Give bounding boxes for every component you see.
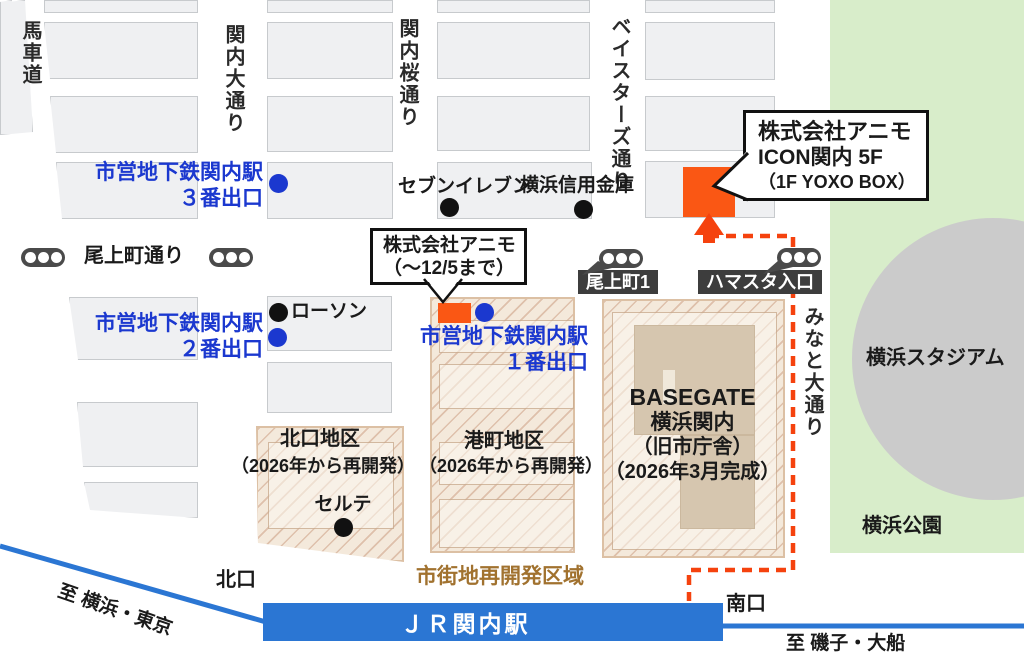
yokohama-stadium-label: 横浜スタジアム [866, 347, 1005, 370]
direction-to-yokohama: 至 横浜・東京 [55, 581, 175, 640]
north-district-name: 北口地区 [250, 428, 390, 451]
building [437, 22, 590, 79]
minatocho-district-note: （2026年から再開発） [419, 456, 603, 477]
lawson-label: ローソン [291, 301, 367, 323]
street-kannai-odori: 関内大通り [219, 24, 248, 134]
building [645, 22, 775, 80]
basegate-line4: （2026年3月完成） [602, 460, 783, 485]
traffic-light-icon [599, 249, 643, 268]
yokohama-park-label: 横浜公園 [862, 515, 942, 538]
exit1-text: １番出口 [388, 350, 588, 376]
building [84, 482, 198, 518]
traffic-light-icon [21, 248, 65, 267]
subway-name: 市営地下鉄関内駅 [388, 324, 588, 350]
minatocho-district-name: 港町地区 [464, 430, 544, 453]
traffic-light-icon [777, 248, 821, 267]
building [77, 402, 198, 467]
building [267, 362, 392, 413]
basegate-label: BASEGATE 横浜関内 （旧市庁舎） （2026年3月完成） [602, 384, 783, 485]
building [267, 96, 393, 152]
old-office-name: 株式会社アニモ [383, 234, 516, 257]
exit2-text: ２番出口 [63, 337, 263, 363]
building [437, 0, 590, 13]
subway-exit2-label: 市営地下鉄関内駅 ２番出口 [63, 311, 263, 363]
subway-exit1-label: 市営地下鉄関内駅 １番出口 [388, 324, 588, 376]
street-onoe-dori: 尾上町通り [84, 245, 184, 268]
south-exit-label: 南口 [726, 593, 766, 616]
sign-hamasuta: ハマスタ入口 [698, 270, 822, 294]
street-bashamichi: 馬車道 [16, 20, 45, 86]
subway-name: 市営地下鉄関内駅 [63, 311, 263, 337]
building [50, 96, 198, 153]
yokohama-shinkin-label: 横浜信用金庫 [520, 175, 634, 197]
street-baystars: ベイスターズ通り [605, 16, 634, 192]
building [437, 96, 590, 151]
route-arrow-stem [703, 233, 715, 243]
jr-kannai-station-label: ＪＲ関内駅 [401, 605, 531, 639]
seven-eleven-dot [440, 198, 459, 217]
zone-inner-block [439, 499, 574, 548]
sign-onoecho1: 尾上町1 [578, 270, 658, 294]
seven-eleven-label: セブンイレブン [398, 176, 531, 198]
new-office-floor: ICON関内 5F [758, 145, 916, 171]
subway-exit3-label: 市営地下鉄関内駅 ３番出口 [63, 160, 263, 212]
yokohama-shinkin-dot [574, 200, 593, 219]
north-exit-label: 北口 [216, 569, 256, 592]
basegate-line1: BASEGATE [602, 384, 783, 410]
building [44, 22, 198, 79]
celte-label: セルテ [303, 494, 383, 516]
lawson-dot [269, 303, 288, 322]
building [267, 22, 393, 79]
basegate-line2: 横浜関内 [602, 410, 783, 435]
building [645, 0, 775, 13]
north-district-note: （2026年から再開発） [231, 456, 415, 477]
old-office-callout: 株式会社アニモ （～12/5まで） [370, 228, 527, 285]
subway-name: 市営地下鉄関内駅 [63, 160, 263, 186]
new-office-name: 株式会社アニモ [758, 118, 916, 145]
traffic-light-icon [209, 248, 253, 267]
basegate-line3: （旧市庁舎） [602, 435, 783, 460]
celte-dot [334, 518, 353, 537]
old-office-marker [438, 303, 471, 323]
new-office-note: （1F YOXO BOX） [758, 171, 916, 194]
new-office-marker [683, 167, 735, 217]
direction-to-isogo: 至 磯子・大船 [786, 633, 905, 655]
subway-exit1-dot [475, 303, 494, 322]
street-kannai-sakura: 関内桜通り [393, 18, 422, 128]
subway-exit3-dot [269, 174, 288, 193]
building [267, 162, 393, 219]
jr-kannai-station-bar: ＪＲ関内駅 [263, 603, 723, 641]
access-map: 横浜スタジアム 横浜公園 馬車道 関内大通り 関内桜通り ベイスターズ通り みな… [0, 0, 1024, 655]
new-office-callout: 株式会社アニモ ICON関内 5F （1F YOXO BOX） [743, 110, 929, 201]
building [267, 0, 393, 13]
old-office-until: （～12/5まで） [383, 257, 516, 280]
redevelopment-area-label: 市街地再開発区域 [416, 565, 584, 589]
street-minato-odori: みなと大通り [798, 306, 827, 438]
exit3-text: ３番出口 [63, 186, 263, 212]
subway-exit2-dot [268, 328, 287, 347]
building [44, 0, 198, 13]
